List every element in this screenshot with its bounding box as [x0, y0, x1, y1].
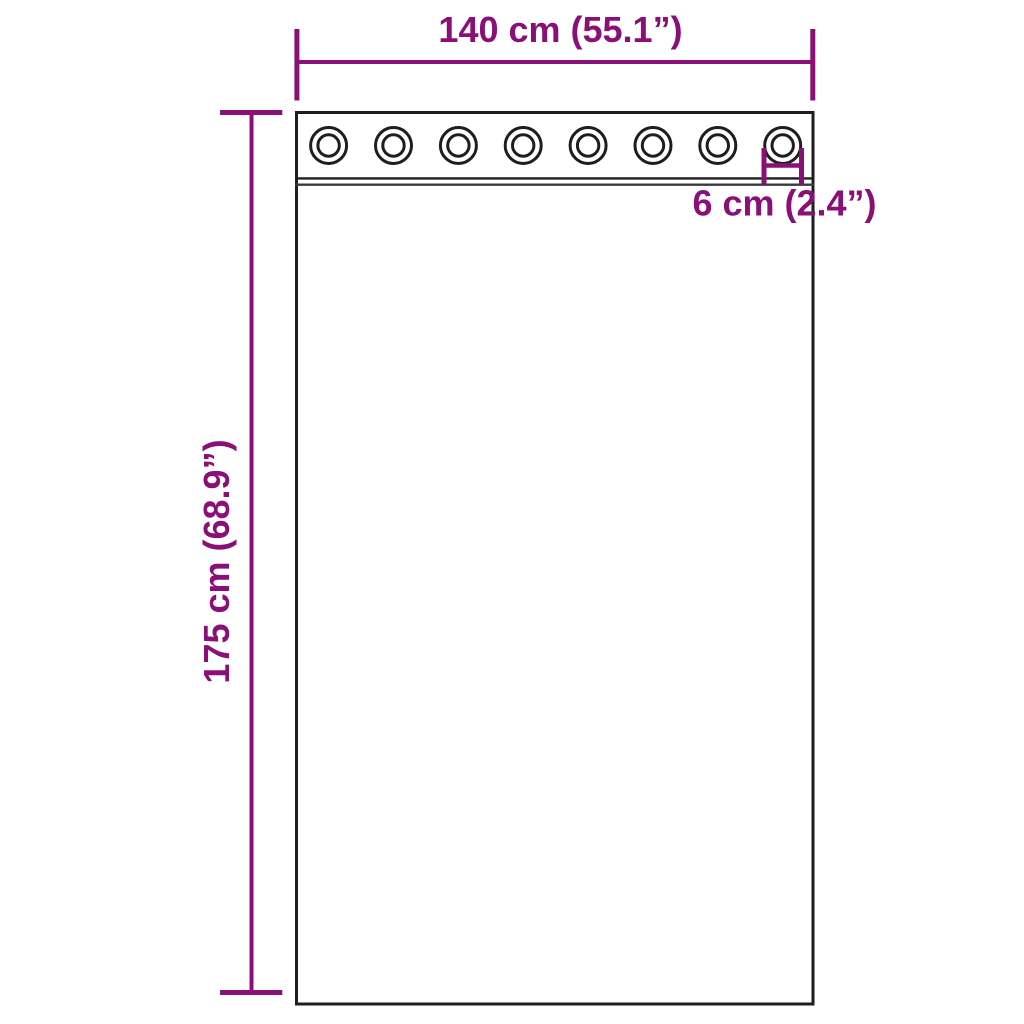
svg-text:6 cm (2.4”): 6 cm (2.4”)	[692, 183, 876, 224]
svg-text:175 cm (68.9”): 175 cm (68.9”)	[196, 439, 237, 683]
svg-text:140 cm (55.1”): 140 cm (55.1”)	[438, 9, 682, 50]
